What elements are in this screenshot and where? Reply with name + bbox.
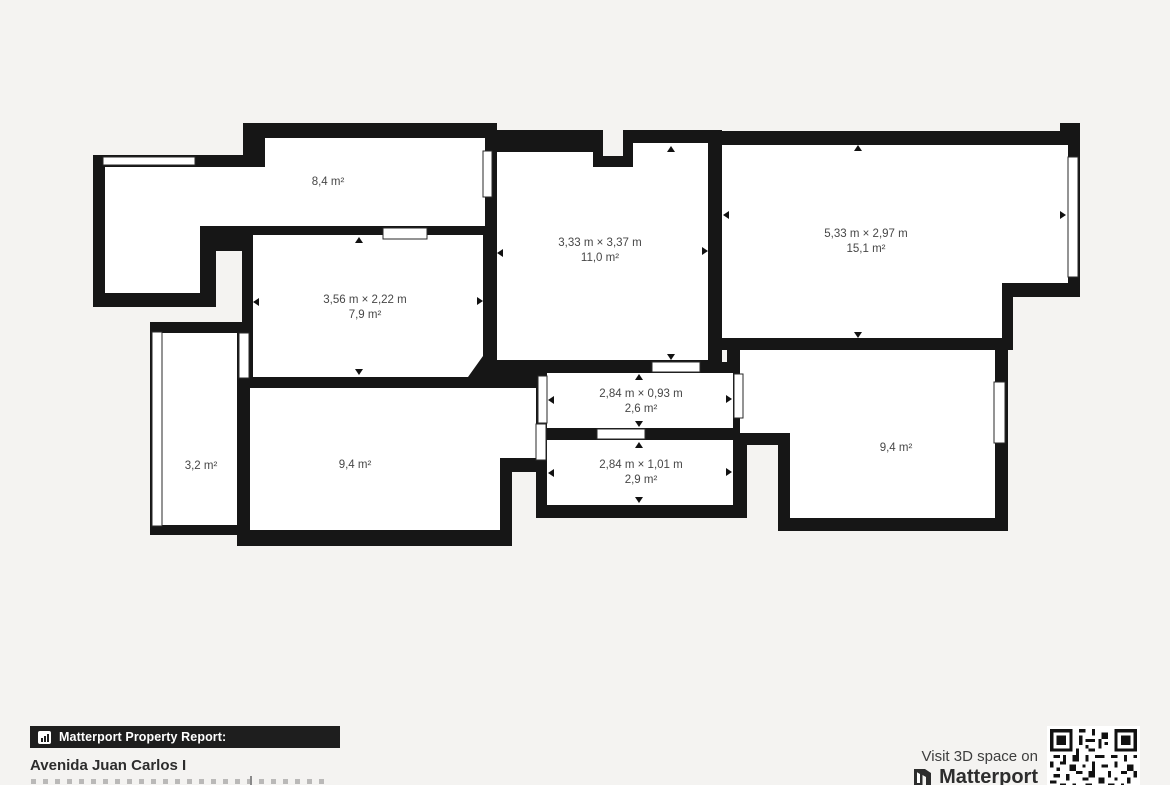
door-balcony: [239, 333, 249, 378]
label-center-area: 11,0 m²: [581, 252, 619, 264]
window-top-left: [103, 157, 195, 165]
exterior-notch: [603, 118, 623, 156]
matterport-logo-text: Matterport: [939, 766, 1038, 785]
property-report-page: 8,4 m² 3,33 m × 3,37 m 11,0 m² 5,33 m × …: [0, 0, 1170, 785]
report-badge-label: Matterport Property Report:: [59, 730, 226, 744]
window-balcony-left: [152, 332, 162, 526]
room-bottom-center-shape: [250, 388, 536, 530]
room-hall-upper-shape: [547, 373, 733, 428]
door-hall-lower-left: [536, 424, 546, 460]
cut-off-text-tick: [250, 776, 252, 785]
label-hall-upper-area: 2,6 m²: [625, 403, 658, 415]
property-address: Avenida Juan Carlos I: [30, 757, 186, 774]
chart-building-icon: [38, 731, 51, 744]
label-right-area: 15,1 m²: [847, 243, 886, 255]
cut-off-text-line: [31, 779, 327, 784]
door-center-hall: [652, 362, 700, 372]
window-bottom-right-room: [994, 382, 1005, 443]
floor-plan: 8,4 m² 3,33 m × 3,37 m 11,0 m² 5,33 m × …: [0, 0, 1170, 785]
label-balcony-area: 3,2 m²: [185, 460, 218, 472]
label-hall-lower-area: 2,9 m²: [625, 474, 658, 486]
report-badge: Matterport Property Report:: [30, 726, 340, 748]
label-storage-area: 8,4 m²: [312, 176, 345, 188]
door-between-halls: [597, 429, 645, 439]
label-bottom-center-area: 9,4 m²: [339, 459, 372, 471]
label-bottom-right-area: 9,4 m²: [880, 442, 913, 454]
label-midleft-dims: 3,56 m × 2,22 m: [323, 294, 406, 306]
room-midleft-shape: [253, 235, 483, 377]
visit-3d-text: Visit 3D space on: [906, 748, 1038, 765]
door-hall-upper-right: [734, 374, 743, 418]
window-right-room: [1068, 157, 1078, 277]
room-balcony-shape: [162, 333, 237, 525]
label-right-dims: 5,33 m × 2,97 m: [824, 228, 907, 240]
room-hall-lower-shape: [547, 440, 733, 505]
door-hall-upper-left: [538, 376, 547, 423]
window-storage-center: [483, 151, 492, 197]
qr-code: [1047, 726, 1140, 785]
label-midleft-area: 7,9 m²: [349, 309, 382, 321]
matterport-logo: Matterport: [906, 766, 1038, 785]
door-storage-midleft: [383, 228, 427, 239]
label-hall-upper-dims: 2,84 m × 0,93 m: [599, 388, 682, 400]
matterport-logo-icon: [912, 767, 933, 785]
room-right-shape: [722, 145, 1068, 338]
label-hall-lower-dims: 2,84 m × 1,01 m: [599, 459, 682, 471]
label-center-dims: 3,33 m × 3,37 m: [558, 237, 641, 249]
